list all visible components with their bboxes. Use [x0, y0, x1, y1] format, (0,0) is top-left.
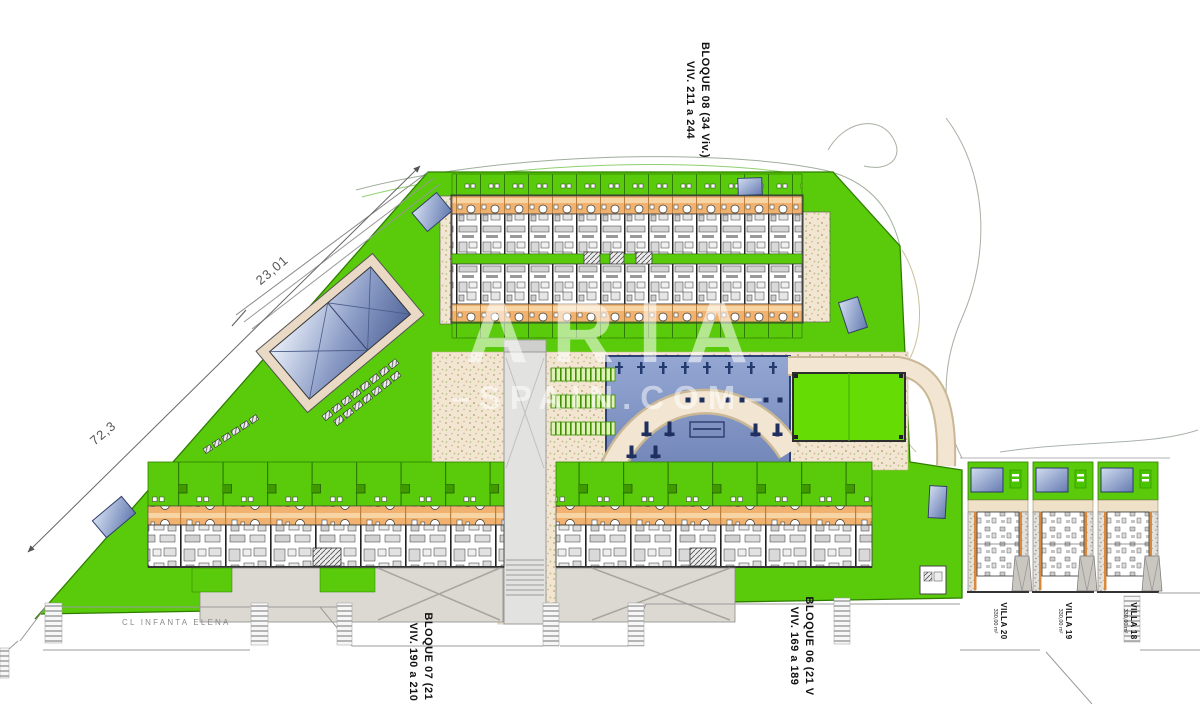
- bloque06-units: VIV. 169 a 189: [786, 596, 801, 695]
- villa-unit-19: [1032, 462, 1097, 593]
- pedestrian-crossing: [0, 648, 9, 678]
- villa-pool: [1101, 468, 1133, 492]
- bloque08-units: VIV. 211 a 244: [682, 42, 697, 158]
- villa-pool: [1036, 468, 1068, 492]
- driveway: [1142, 556, 1162, 591]
- driveway: [1012, 556, 1032, 591]
- bloque08-name: BLOQUE 08 (34 Viv.): [697, 42, 712, 158]
- bloque06-name: BLOQUE 06 (21 V: [801, 596, 816, 695]
- bloque08-building: [440, 174, 830, 338]
- villa-20-area: 330,00 m²: [992, 602, 999, 639]
- villa-unit-20: [967, 462, 1032, 593]
- bloque08-label: BLOQUE 08 (34 Viv.) VIV. 211 a 244: [682, 42, 712, 158]
- villa-18-label: VILLA 18 330,00 m²: [1122, 602, 1138, 639]
- villa-pool: [971, 468, 1003, 492]
- villa-19-name: VILLA 19: [1064, 602, 1074, 639]
- site-plan: BLOQUE 08 (34 Viv.) VIV. 211 a 244 BLOQU…: [0, 0, 1200, 704]
- villa-unit-18: [1097, 462, 1162, 593]
- pedestrian-crossing: [337, 603, 352, 645]
- driveway: [1077, 556, 1097, 591]
- road-name-label: CL INFANTA ELENA: [122, 618, 231, 627]
- villa-19-area: 330,00 m²: [1057, 602, 1064, 639]
- villa-18-name: VILLA 18: [1129, 602, 1139, 639]
- utility-box: [920, 566, 946, 594]
- bloque06-label: BLOQUE 06 (21 V VIV. 169 a 189: [786, 596, 816, 695]
- pedestrian-crossing: [628, 603, 644, 646]
- pedestrian-crossing: [834, 598, 850, 644]
- site-plan-svg: [0, 0, 1200, 704]
- bloque07-building: [148, 462, 504, 568]
- villa-19-label: VILLA 19 330,00 m²: [1057, 602, 1073, 639]
- villa-20-name: VILLA 20: [999, 602, 1009, 639]
- villas: [960, 458, 1170, 593]
- pedestrian-crossing: [45, 603, 62, 643]
- bloque07-label: BLOQUE 07 (21 V VIV. 190 a 210: [405, 612, 435, 704]
- villa-20-label: VILLA 20 330,00 m²: [992, 602, 1008, 639]
- bloque06-building: [556, 462, 872, 568]
- bloque07-units: VIV. 190 a 210: [405, 612, 420, 704]
- villa-18-area: 330,00 m²: [1122, 602, 1129, 639]
- pedestrian-crossing: [543, 603, 559, 646]
- planters: [551, 368, 615, 435]
- sports-court: [793, 373, 905, 441]
- parking-bloque06: [556, 568, 735, 622]
- bloque07-name: BLOQUE 07 (21 V: [420, 612, 435, 704]
- pedestrian-crossing: [251, 603, 268, 645]
- central-walkway: [504, 340, 546, 624]
